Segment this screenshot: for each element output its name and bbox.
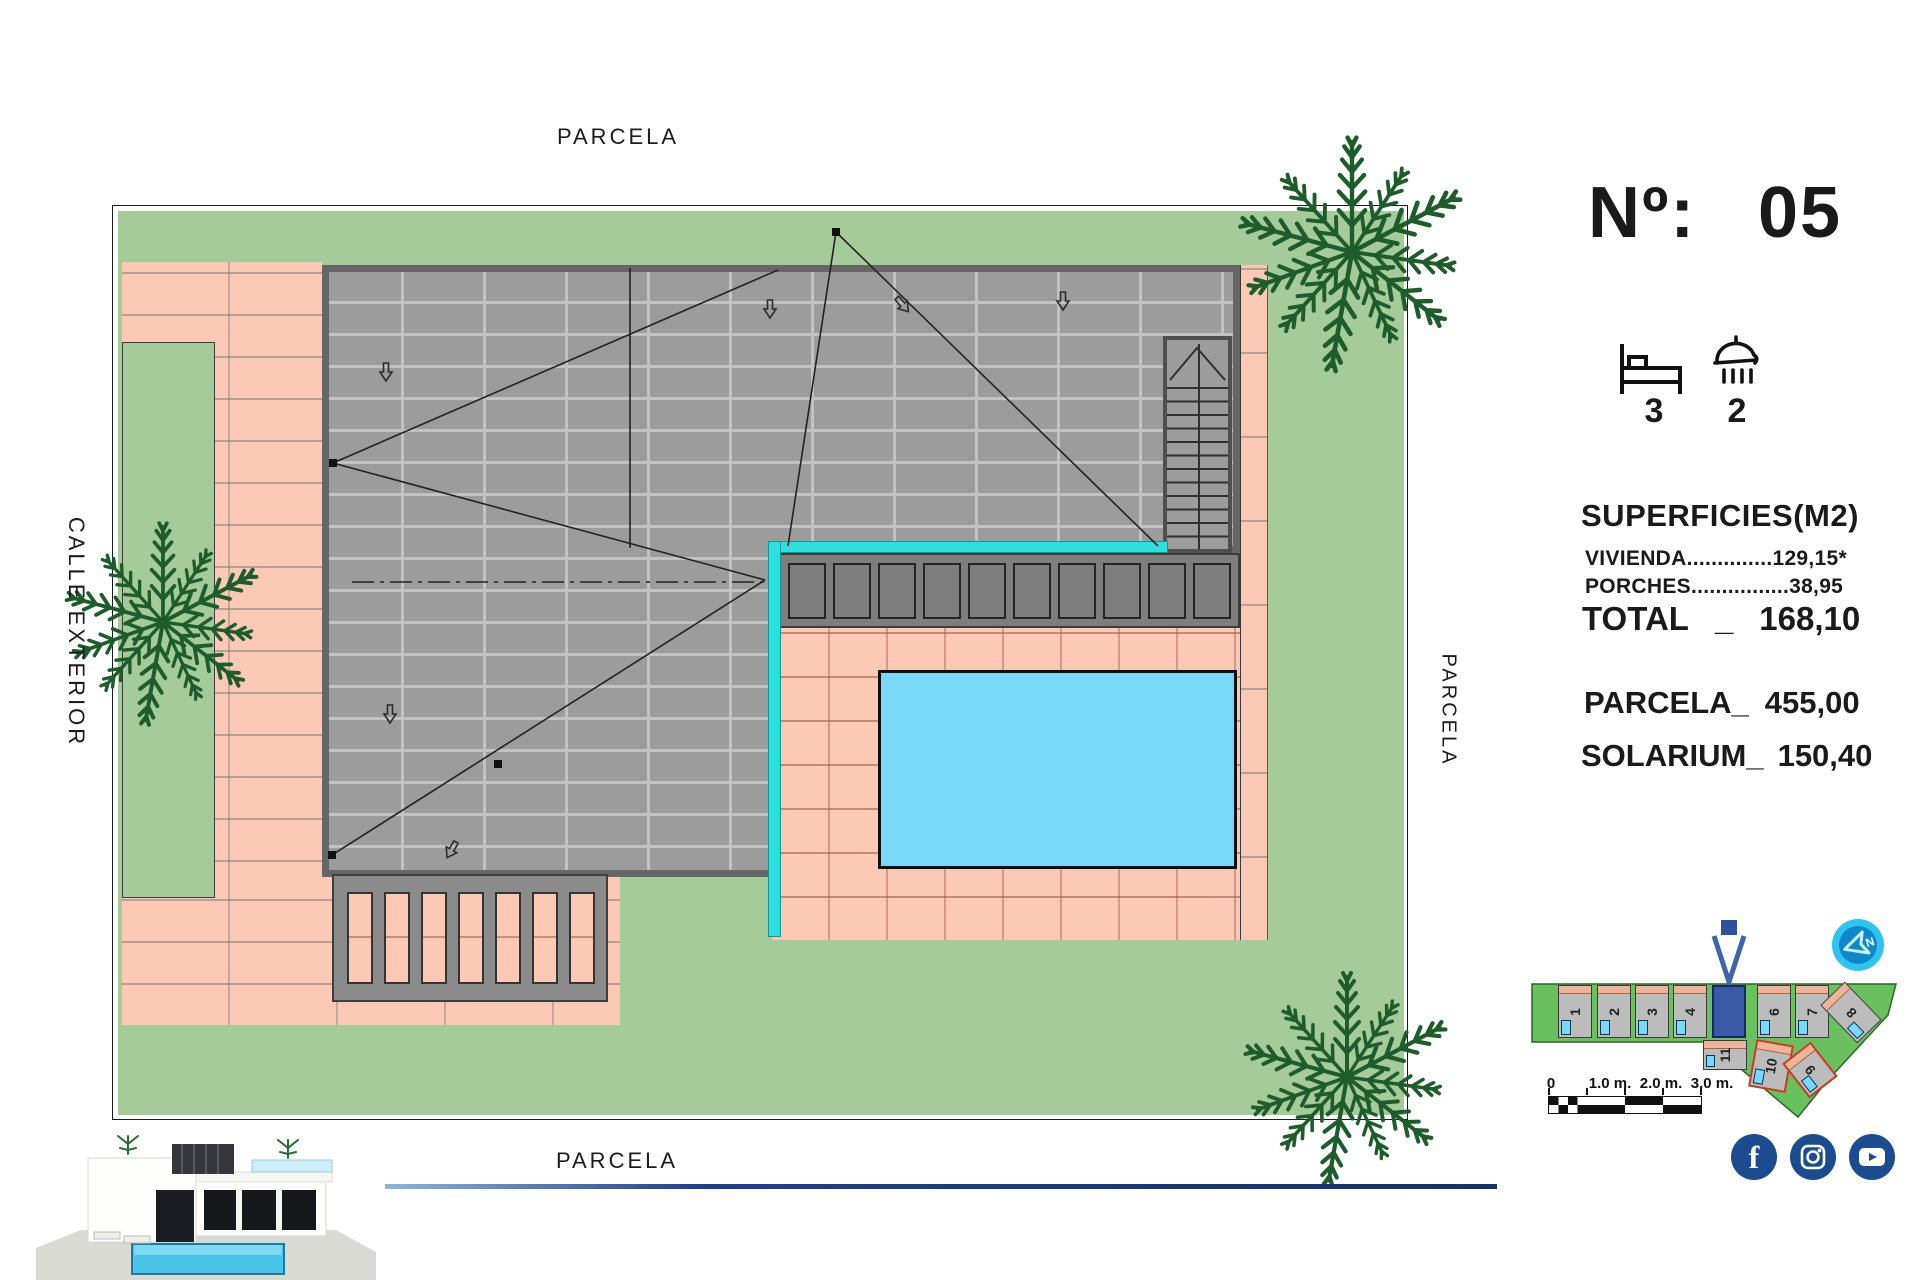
pergola-beam	[1193, 563, 1231, 619]
minimap-plot: 11	[1703, 1040, 1747, 1070]
label-calle-exterior: CALLE EXTERIOR	[63, 517, 89, 747]
bedrooms-count: 3	[1636, 392, 1672, 431]
plot-number-value: 05	[1758, 172, 1842, 254]
pergola-opening	[384, 892, 410, 984]
solarium-line: SOLARIUM_ 150,40	[1581, 738, 1872, 774]
social-links: f	[1729, 1132, 1899, 1188]
total-value: 168,10	[1759, 600, 1860, 638]
pergola-beam	[923, 563, 961, 619]
pergola-beam	[878, 563, 916, 619]
minimap-plot: 1	[1558, 985, 1592, 1038]
scale-tick-label: 2.0 m.	[1640, 1075, 1683, 1092]
brochure-page: PARCELA PARCELA CALLE EXTERIOR PARCELA N…	[0, 0, 1920, 1280]
total-separator: _	[1715, 600, 1733, 638]
facebook-icon[interactable]: f	[1729, 1132, 1779, 1182]
glass-fence-vertical	[768, 541, 781, 937]
plot-number-label: Nº:	[1588, 172, 1696, 254]
youtube-icon[interactable]	[1847, 1132, 1897, 1182]
vivienda-line: VIVIENDA..............129,15*	[1585, 547, 1847, 571]
minimap-plot: 4	[1673, 985, 1707, 1038]
garden-pergola	[332, 874, 608, 1002]
pergola-opening	[347, 892, 373, 984]
stair-center-rail	[1198, 344, 1200, 549]
parcela-value: 455,00	[1765, 685, 1860, 721]
pergola-beam	[1148, 563, 1186, 619]
pergola-opening	[421, 892, 447, 984]
total-label: TOTAL	[1582, 600, 1689, 638]
minimap-plot: 2	[1597, 985, 1631, 1038]
parcela-line: PARCELA_ 455,00	[1584, 685, 1860, 721]
villa-render-thumbnail	[36, 1128, 376, 1280]
parcela-label: PARCELA_	[1584, 685, 1749, 721]
porch-pergola-strip	[779, 553, 1240, 628]
development-minimap: 1 2 3 4 6 7 8 11 10 9	[1530, 920, 1920, 1130]
pergola-beam	[968, 563, 1006, 619]
pergola-beam	[1103, 563, 1141, 619]
solarium-label: SOLARIUM_	[1581, 738, 1764, 774]
pergola-opening	[569, 892, 595, 984]
svg-text:f: f	[1749, 1139, 1760, 1175]
label-parcela-right: PARCELA	[1437, 654, 1460, 767]
footer-divider-line	[385, 1184, 1497, 1189]
total-line: TOTAL _ 168,10	[1582, 600, 1860, 638]
surfaces-title: SUPERFICIES(M2)	[1581, 498, 1859, 534]
scale-bar	[1548, 1096, 1702, 1114]
pergola-beam	[833, 563, 871, 619]
minimap-plot: 3	[1635, 985, 1669, 1038]
pergola-opening	[532, 892, 558, 984]
solarium-value: 150,40	[1778, 738, 1873, 774]
swimming-pool	[878, 670, 1237, 869]
bathrooms-count: 2	[1719, 392, 1755, 431]
instagram-icon[interactable]	[1788, 1132, 1838, 1182]
scale-tick-label: 3.0 m.	[1691, 1075, 1734, 1092]
label-parcela-bottom: PARCELA	[556, 1148, 678, 1174]
paving-right-strip	[1240, 265, 1268, 940]
pergola-opening	[495, 892, 521, 984]
pergola-opening	[458, 892, 484, 984]
porches-line: PORCHES................38,95	[1585, 575, 1843, 599]
minimap-plot: 7	[1795, 985, 1829, 1038]
pergola-beam	[1013, 563, 1051, 619]
minimap-plot: 6	[1757, 985, 1791, 1038]
glass-fence-horizontal	[770, 541, 1168, 553]
minimap-plot-highlighted	[1712, 985, 1746, 1038]
bed-icon	[1618, 344, 1684, 394]
pergola-beam	[788, 563, 826, 619]
staircase	[1163, 336, 1232, 553]
label-parcela-top: PARCELA	[557, 124, 679, 150]
pergola-beam	[1058, 563, 1096, 619]
shower-icon	[1710, 334, 1764, 394]
grass-left-column	[122, 342, 215, 898]
